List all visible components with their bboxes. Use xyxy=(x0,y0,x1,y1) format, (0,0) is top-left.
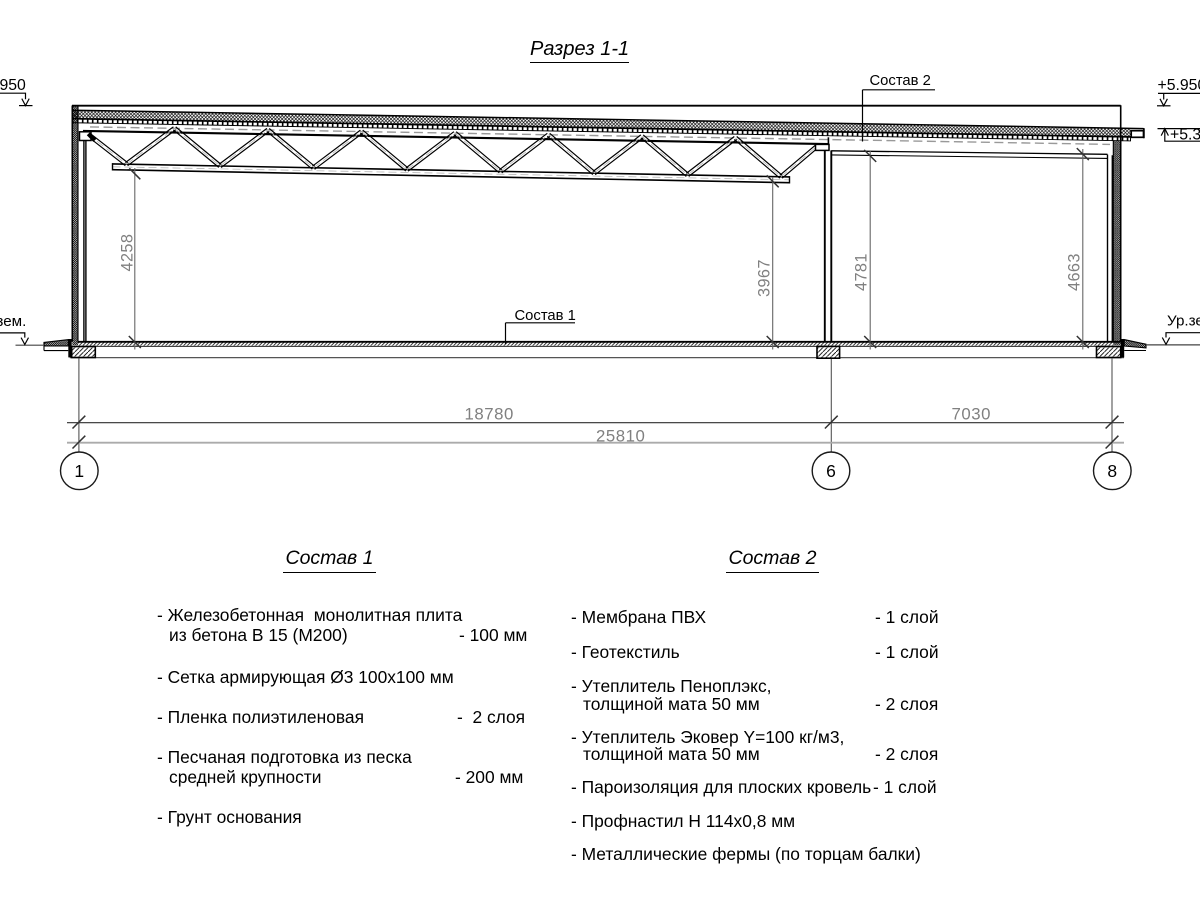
svg-text:1: 1 xyxy=(74,461,84,481)
svg-text:Ур.зем.: Ур.зем. xyxy=(0,313,26,330)
svg-text:4781: 4781 xyxy=(853,253,871,291)
svg-text:3967: 3967 xyxy=(756,259,774,297)
svg-text:Ур.зем.: Ур.зем. xyxy=(1167,312,1200,329)
svg-text:Состав 2: Состав 2 xyxy=(870,73,931,89)
svg-text:6: 6 xyxy=(826,461,836,481)
svg-text:25810: 25810 xyxy=(596,427,645,446)
svg-text:Состав 1: Состав 1 xyxy=(515,308,576,324)
svg-text:8: 8 xyxy=(1107,461,1117,481)
svg-text:7030: 7030 xyxy=(952,404,992,423)
svg-text:18780: 18780 xyxy=(465,404,514,423)
svg-text:+5.950: +5.950 xyxy=(1158,77,1200,94)
svg-text:4258: 4258 xyxy=(119,234,137,272)
svg-text:4663: 4663 xyxy=(1066,253,1084,291)
svg-text:.950: .950 xyxy=(0,77,26,94)
